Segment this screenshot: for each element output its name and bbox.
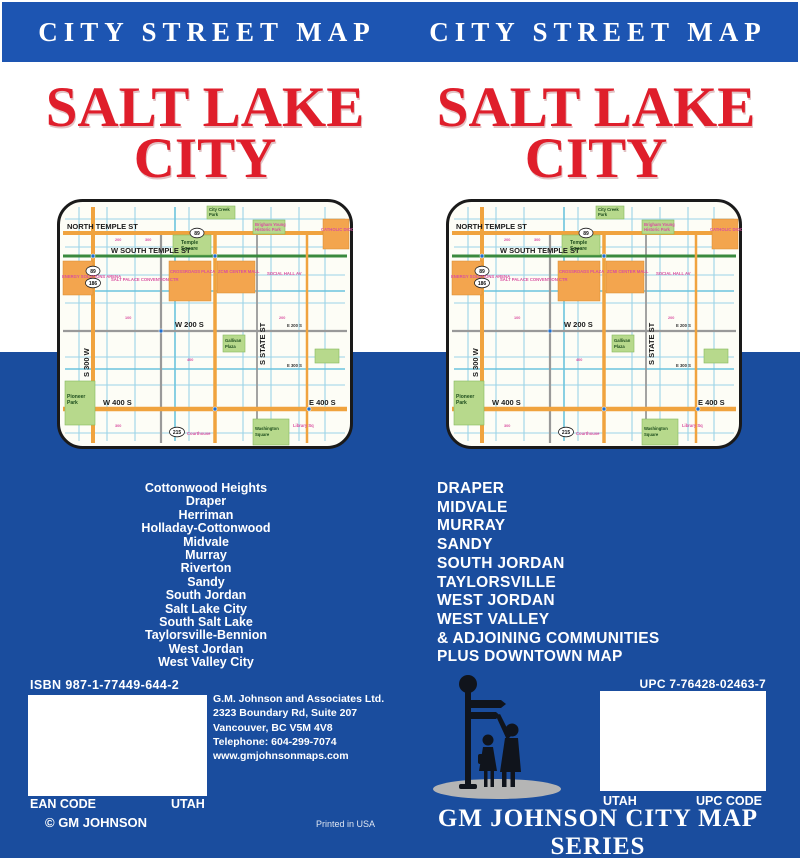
north-temple-label: NORTH TEMPLE ST bbox=[456, 222, 527, 231]
gallivan-label-2: Plaza bbox=[225, 344, 236, 349]
plus-downtown-map-line: PLUS DOWNTOWN MAP bbox=[437, 648, 659, 667]
washington-square-label-2: Square bbox=[255, 432, 270, 437]
publisher-line: 2323 Boundary Rd, Suite 207 bbox=[213, 706, 384, 720]
state-st-label: S STATE ST bbox=[647, 322, 656, 365]
block-number: 200 bbox=[279, 316, 285, 320]
city-item: SANDY bbox=[437, 536, 659, 555]
gallivan-label-1: Gallivan bbox=[225, 338, 242, 343]
publisher-line: Telephone: 604-299-7074 bbox=[213, 735, 384, 749]
salt-palace-label: SALT PALACE CONVENTION CTR bbox=[500, 277, 568, 282]
crossroads-label: CROSSROADS PLAZA bbox=[559, 269, 604, 274]
series-title: GM JOHNSON CITY MAP SERIES bbox=[428, 805, 768, 858]
e300s-label: E 300 S bbox=[676, 363, 691, 368]
publisher-website: www.gmjohnsonmaps.com bbox=[213, 749, 384, 763]
downtown-map-left: 89 89 186 215 NORTH TEMPLE ST W SOUTH TE… bbox=[57, 199, 353, 449]
city-item: Salt Lake City bbox=[6, 603, 406, 616]
upc-number: UPC 7-76428-02463-7 bbox=[600, 677, 766, 691]
w200s-label: W 200 S bbox=[564, 320, 593, 329]
block-number: 300 bbox=[504, 424, 510, 428]
e200s-label: E 200 S bbox=[287, 323, 302, 328]
logo-ground-ellipse bbox=[433, 779, 561, 799]
city-item: Holladay-Cottonwood bbox=[6, 522, 406, 535]
state-st-label: S STATE ST bbox=[258, 322, 267, 365]
w400s-label: W 400 S bbox=[103, 398, 132, 407]
cover-title-left: SALT LAKE CITY bbox=[5, 82, 405, 184]
washington-square-label-1: Washington bbox=[255, 426, 279, 431]
courthouse-label: Courthouse bbox=[576, 431, 600, 436]
printed-in-usa-label: Printed in USA bbox=[316, 819, 375, 829]
library-label: Library Sq bbox=[682, 423, 703, 428]
ean-code-label: EAN CODE bbox=[30, 797, 96, 811]
signpost-people-logo bbox=[428, 670, 578, 805]
block-number: 100 bbox=[514, 316, 520, 320]
zcmi-label: ZCMI CENTER MALL bbox=[607, 269, 649, 274]
city-list-right: DRAPER MIDVALE MURRAY SANDY SOUTH JORDAN… bbox=[437, 480, 659, 667]
cover-title-line2: CITY bbox=[5, 133, 405, 184]
city-creek-label-2: Park bbox=[209, 212, 219, 217]
signpost-icon bbox=[459, 675, 506, 789]
catholic-label: CATHOLIC DIOCESE bbox=[321, 227, 353, 232]
pioneer-park-label-2: Park bbox=[67, 400, 78, 406]
north-temple-label: NORTH TEMPLE ST bbox=[67, 222, 138, 231]
w200s-label: W 200 S bbox=[175, 320, 204, 329]
block-number: 200 bbox=[504, 238, 510, 242]
s300w-label: S 300 W bbox=[82, 347, 91, 377]
crossroads-label: CROSSROADS PLAZA bbox=[170, 269, 215, 274]
washington-square-label-1: Washington bbox=[644, 426, 668, 431]
header-band: CITY STREET MAP CITY STREET MAP bbox=[2, 2, 798, 62]
block-number: 300 bbox=[115, 424, 121, 428]
salt-palace-label: SALT PALACE CONVENTION CTR bbox=[111, 277, 179, 282]
downtown-inset-map: 89 89 186 215 NORTH TEMPLE ST W SOUTH TE… bbox=[446, 199, 742, 449]
social-hall-label: SOCIAL HALL AV bbox=[656, 271, 691, 276]
state-label-left: UTAH bbox=[171, 797, 205, 811]
washington-square-label-2: Square bbox=[644, 432, 659, 437]
city-list-left: Cottonwood Heights Draper Herriman Holla… bbox=[6, 482, 406, 670]
south-temple-label: W SOUTH TEMPLE ST bbox=[111, 246, 191, 255]
city-item: Midvale bbox=[6, 536, 406, 549]
arena-label: ENERGY SOLUTIONS ARENA bbox=[62, 274, 121, 279]
downtown-inset-map: 89 89 186 215 NORTH TEMPLE ST W SOUTH TE… bbox=[57, 199, 353, 449]
downtown-map-right: 89 89 186 215 NORTH TEMPLE ST W SOUTH TE… bbox=[446, 199, 742, 449]
band-title-left: CITY STREET MAP bbox=[7, 2, 407, 62]
people-silhouettes bbox=[478, 714, 521, 787]
cover-title-line2: CITY bbox=[396, 133, 796, 184]
city-creek-label-2: Park bbox=[598, 212, 608, 217]
gallivan-label-1: Gallivan bbox=[614, 338, 631, 343]
publisher-line: Vancouver, BC V5M 4V8 bbox=[213, 721, 384, 735]
block-number: 200 bbox=[668, 316, 674, 320]
copyright-line: © GM JOHNSON bbox=[45, 815, 147, 830]
cover-title-line1: SALT LAKE bbox=[5, 82, 405, 133]
cover-title-line1: SALT LAKE bbox=[396, 82, 796, 133]
city-item: Taylorsville-Bennion bbox=[6, 629, 406, 642]
isbn-number: ISBN 987-1-77449-644-2 bbox=[30, 678, 179, 692]
city-item: West Valley City bbox=[6, 656, 406, 669]
gallivan-label-2: Plaza bbox=[614, 344, 625, 349]
w400s-label: W 400 S bbox=[492, 398, 521, 407]
temple-square-label-2: Square bbox=[570, 246, 587, 252]
route-shield-215: 215 bbox=[173, 430, 182, 436]
e200s-label: E 200 S bbox=[676, 323, 691, 328]
upc-barcode-placeholder bbox=[600, 691, 766, 791]
city-item: South Jordan bbox=[6, 589, 406, 602]
city-item: DRAPER bbox=[437, 480, 659, 499]
pioneer-park-label-2: Park bbox=[456, 400, 467, 406]
courthouse-label: Courthouse bbox=[187, 431, 211, 436]
e400s-label: E 400 S bbox=[309, 398, 336, 407]
catholic-label: CATHOLIC DIOCESE bbox=[710, 227, 742, 232]
block-number: 200 bbox=[115, 238, 121, 242]
e300s-label: E 300 S bbox=[287, 363, 302, 368]
arena-label: ENERGY SOLUTIONS ARENA bbox=[451, 274, 510, 279]
city-item: MIDVALE bbox=[437, 499, 659, 518]
city-item: WEST JORDAN bbox=[437, 592, 659, 611]
library-label: Library Sq bbox=[293, 423, 314, 428]
social-hall-label: SOCIAL HALL AV bbox=[267, 271, 302, 276]
block-number: 300 bbox=[534, 238, 540, 242]
band-title-right: CITY STREET MAP bbox=[400, 2, 796, 62]
brigham-label-2: Historic Park bbox=[644, 227, 671, 232]
city-item: MURRAY bbox=[437, 517, 659, 536]
e400s-label: E 400 S bbox=[698, 398, 725, 407]
block-number: 400 bbox=[576, 358, 582, 362]
city-item: SOUTH JORDAN bbox=[437, 555, 659, 574]
city-item: TAYLORSVILLE bbox=[437, 574, 659, 593]
zcmi-label: ZCMI CENTER MALL bbox=[218, 269, 260, 274]
route-shield-89-top: 89 bbox=[194, 231, 200, 237]
city-item: Cottonwood Heights bbox=[6, 482, 406, 495]
publisher-address-block: G.M. Johnson and Associates Ltd. 2323 Bo… bbox=[213, 692, 384, 763]
temple-square-label-2: Square bbox=[181, 246, 198, 252]
route-shield-186: 186 bbox=[478, 281, 487, 287]
block-number: 400 bbox=[187, 358, 193, 362]
publisher-line: G.M. Johnson and Associates Ltd. bbox=[213, 692, 384, 706]
route-shield-215: 215 bbox=[562, 430, 571, 436]
city-item: Murray bbox=[6, 549, 406, 562]
south-temple-label: W SOUTH TEMPLE ST bbox=[500, 246, 580, 255]
city-item: Draper bbox=[6, 495, 406, 508]
city-item: WEST VALLEY bbox=[437, 611, 659, 630]
ean-barcode-placeholder bbox=[28, 695, 207, 796]
city-item: Sandy bbox=[6, 576, 406, 589]
block-number: 300 bbox=[145, 238, 151, 242]
city-item: South Salt Lake bbox=[6, 616, 406, 629]
s300w-label: S 300 W bbox=[471, 347, 480, 377]
cover-title-right: SALT LAKE CITY bbox=[396, 82, 796, 184]
route-shield-186: 186 bbox=[89, 281, 98, 287]
city-item: Herriman bbox=[6, 509, 406, 522]
city-item: Riverton bbox=[6, 562, 406, 575]
city-item: West Jordan bbox=[6, 643, 406, 656]
map-cover: CITY STREET MAP CITY STREET MAP SALT LAK… bbox=[0, 0, 800, 858]
block-number: 100 bbox=[125, 316, 131, 320]
brigham-label-2: Historic Park bbox=[255, 227, 282, 232]
adjoining-communities-line: & ADJOINING COMMUNITIES bbox=[437, 630, 659, 649]
route-shield-89-top: 89 bbox=[583, 231, 589, 237]
